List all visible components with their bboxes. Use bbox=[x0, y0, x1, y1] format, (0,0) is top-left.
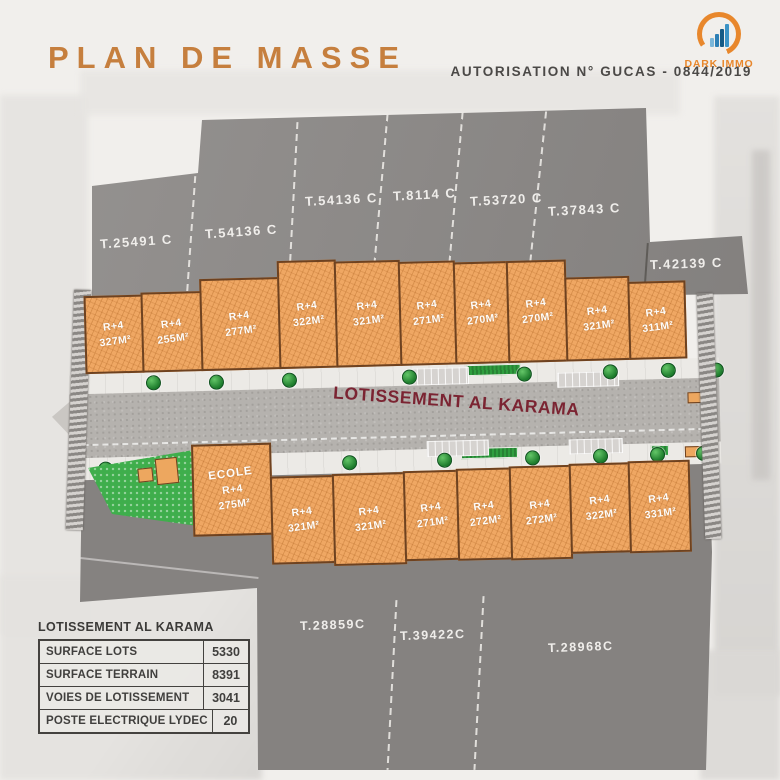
lot: R+4322M² bbox=[569, 462, 632, 554]
lot: R+4321M² bbox=[334, 260, 403, 368]
aerial-background-right-streak bbox=[752, 150, 770, 480]
lot: R+4272M² bbox=[509, 465, 573, 561]
utility-building bbox=[155, 457, 180, 485]
lot: R+4277M² bbox=[199, 277, 281, 371]
table-row-value: 20 bbox=[213, 710, 248, 732]
lot-label: R+4321M² bbox=[580, 302, 615, 336]
plan-de-masse-page: PLAN DE MASSE AUTORISATION N° GUCAS - 08… bbox=[0, 0, 780, 780]
lot-label: R+4327M² bbox=[96, 317, 131, 351]
table-row: SURFACE LOTS5330 bbox=[40, 641, 248, 663]
logo-ring-icon bbox=[697, 12, 741, 56]
table-row: VOIES DE LOTISSEMENT3041 bbox=[40, 686, 248, 709]
lot-row-south: ECOLER+4275M²R+4321M²R+4321M²R+4271M²R+4… bbox=[191, 445, 708, 588]
table-row-label: SURFACE TERRAIN bbox=[40, 664, 204, 686]
lot-label: R+4331M² bbox=[642, 489, 677, 523]
lot-label: R+4271M² bbox=[410, 296, 445, 330]
lot-label: R+4322M² bbox=[583, 491, 618, 525]
lot-label: R+4311M² bbox=[640, 303, 675, 337]
page-title: PLAN DE MASSE bbox=[48, 40, 407, 76]
lot-label: R+4277M² bbox=[223, 307, 258, 341]
lot-label: R+4321M² bbox=[350, 297, 385, 331]
lot: R+4321M² bbox=[332, 472, 407, 566]
lot-label: R+4270M² bbox=[519, 294, 554, 328]
table-row-label: POSTE ELECTRIQUE LYDEC bbox=[40, 710, 213, 732]
lot-label: R+4270M² bbox=[464, 296, 499, 330]
lot: R+4271M² bbox=[403, 470, 460, 561]
lot-label: R+4271M² bbox=[414, 498, 449, 532]
lot-label: ECOLER+4275M² bbox=[207, 463, 257, 516]
logo-buildings-icon bbox=[697, 21, 741, 47]
lot-label: R+4321M² bbox=[285, 503, 320, 537]
table-row-label: VOIES DE LOTISSEMENT bbox=[40, 687, 204, 709]
table-row-value: 3041 bbox=[204, 687, 248, 709]
table-row-value: 8391 bbox=[204, 664, 248, 686]
lot: R+4270M² bbox=[453, 261, 511, 364]
aerial-background-bottom-right bbox=[700, 650, 780, 780]
lot: R+4327M² bbox=[84, 295, 145, 375]
summary-table-title: LOTISSEMENT AL KARAMA bbox=[38, 620, 250, 634]
logo-wordmark: DARK IMMO bbox=[676, 58, 762, 70]
table-row-value: 5330 bbox=[204, 641, 248, 663]
lot-ecole: ECOLER+4275M² bbox=[191, 443, 273, 537]
lot: R+4255M² bbox=[140, 291, 203, 373]
hedge-strip bbox=[467, 364, 521, 376]
lot-label: R+4272M² bbox=[467, 497, 502, 531]
lot: R+4271M² bbox=[398, 260, 458, 365]
table-row: SURFACE TERRAIN8391 bbox=[40, 663, 248, 686]
lot: R+4331M² bbox=[628, 460, 692, 554]
lot: R+4272M² bbox=[456, 467, 513, 560]
utility-building bbox=[137, 467, 153, 482]
aerial-background-right bbox=[714, 96, 780, 696]
dark-immo-logo: DARK IMMO bbox=[676, 12, 762, 70]
table-row-label: SURFACE LOTS bbox=[40, 641, 204, 663]
parking-block bbox=[409, 367, 469, 386]
lot: R+4321M² bbox=[564, 276, 631, 362]
lot-label: R+4272M² bbox=[523, 495, 558, 529]
table-row: POSTE ELECTRIQUE LYDEC20 bbox=[40, 709, 248, 732]
lot: R+4311M² bbox=[627, 280, 687, 359]
parcel-label: T.28859C bbox=[300, 617, 366, 633]
parcel-label: T.28968C bbox=[548, 639, 614, 655]
parcel-label: T.39422C bbox=[400, 627, 466, 643]
lot-label: R+4321M² bbox=[352, 502, 387, 536]
lot-label: R+4322M² bbox=[290, 297, 325, 331]
lot-label: R+4255M² bbox=[154, 315, 189, 349]
lot: R+4321M² bbox=[270, 475, 336, 565]
lot: R+4322M² bbox=[277, 260, 339, 370]
lot-row-north: R+4327M²R+4255M²R+4277M²R+4322M²R+4321M²… bbox=[83, 246, 710, 374]
lot: R+4270M² bbox=[506, 260, 569, 364]
summary-table-body: SURFACE LOTS5330SURFACE TERRAIN8391VOIES… bbox=[38, 639, 250, 734]
summary-table: LOTISSEMENT AL KARAMA SURFACE LOTS5330SU… bbox=[38, 620, 250, 734]
